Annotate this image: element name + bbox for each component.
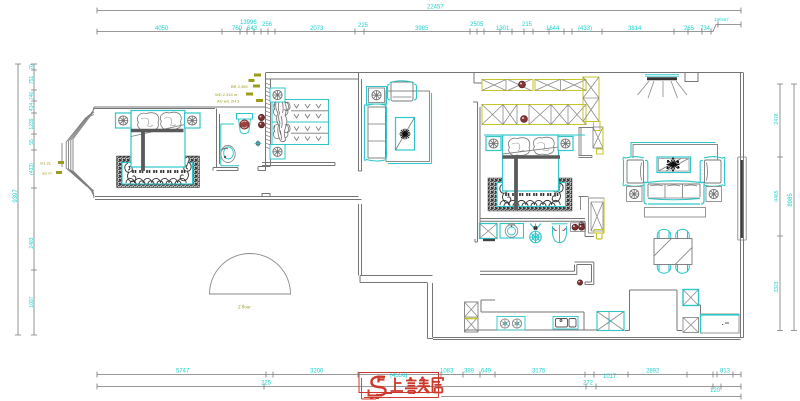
- svg-text:1644: 1644: [546, 26, 560, 32]
- svg-text:8985: 8985: [788, 193, 794, 207]
- svg-text:1097: 1097: [29, 296, 35, 307]
- svg-text:1301: 1301: [496, 26, 510, 32]
- svg-text:1017: 1017: [603, 374, 617, 380]
- svg-text:BR 2,350: BR 2,350: [231, 84, 248, 89]
- svg-text:1239: 1239: [29, 118, 35, 129]
- svg-text:746: 746: [29, 92, 35, 101]
- svg-text:256: 256: [262, 22, 273, 28]
- svg-text:3814: 3814: [628, 26, 642, 32]
- svg-text:1083: 1083: [440, 369, 454, 375]
- svg-text:0465: 0465: [774, 190, 780, 201]
- svg-text:2892: 2892: [646, 369, 660, 375]
- svg-text:9397: 9397: [13, 189, 19, 203]
- svg-text:m1 2L: m1 2L: [40, 161, 52, 166]
- svg-text:70: 70: [29, 64, 35, 70]
- svg-text:225: 225: [358, 23, 369, 29]
- svg-text:389: 389: [464, 369, 475, 375]
- svg-text:(433): (433): [578, 26, 592, 32]
- svg-text:3323: 3323: [774, 281, 780, 292]
- svg-text:751: 751: [29, 76, 35, 85]
- svg-text:225: 225: [261, 381, 272, 387]
- svg-text:643: 643: [247, 26, 258, 32]
- svg-text:760: 760: [232, 26, 243, 32]
- svg-text:2073: 2073: [310, 26, 324, 32]
- svg-text:215: 215: [522, 22, 533, 28]
- svg-text:2478: 2478: [774, 113, 780, 124]
- svg-text:120: 120: [710, 388, 721, 394]
- svg-text:3175: 3175: [532, 369, 546, 375]
- svg-text:813: 813: [720, 369, 731, 375]
- svg-text:2483: 2483: [29, 237, 35, 248]
- svg-text:265: 265: [684, 26, 695, 32]
- svg-text:22457: 22457: [427, 5, 444, 11]
- svg-text:649: 649: [481, 369, 492, 375]
- svg-text:130x67: 130x67: [714, 17, 729, 22]
- svg-text:55: 55: [29, 139, 35, 145]
- svg-text:w1 m: w1 m: [42, 171, 52, 176]
- svg-text:4050: 4050: [155, 26, 169, 32]
- svg-text:(4556): (4556): [390, 373, 407, 379]
- svg-text:272: 272: [583, 381, 594, 387]
- svg-text:WD 2,314 m: WD 2,314 m: [215, 92, 238, 97]
- svg-text:3200: 3200: [310, 369, 324, 375]
- svg-text:3985: 3985: [415, 26, 429, 32]
- svg-text:Z floor: Z floor: [238, 305, 251, 310]
- svg-text:2505: 2505: [470, 22, 484, 28]
- svg-text:734: 734: [700, 26, 711, 32]
- svg-text:AD w/L 2H 3: AD w/L 2H 3: [217, 99, 240, 104]
- svg-text:(433): (433): [29, 163, 35, 175]
- svg-text:5747: 5747: [176, 369, 190, 375]
- svg-text:414: 414: [29, 103, 35, 112]
